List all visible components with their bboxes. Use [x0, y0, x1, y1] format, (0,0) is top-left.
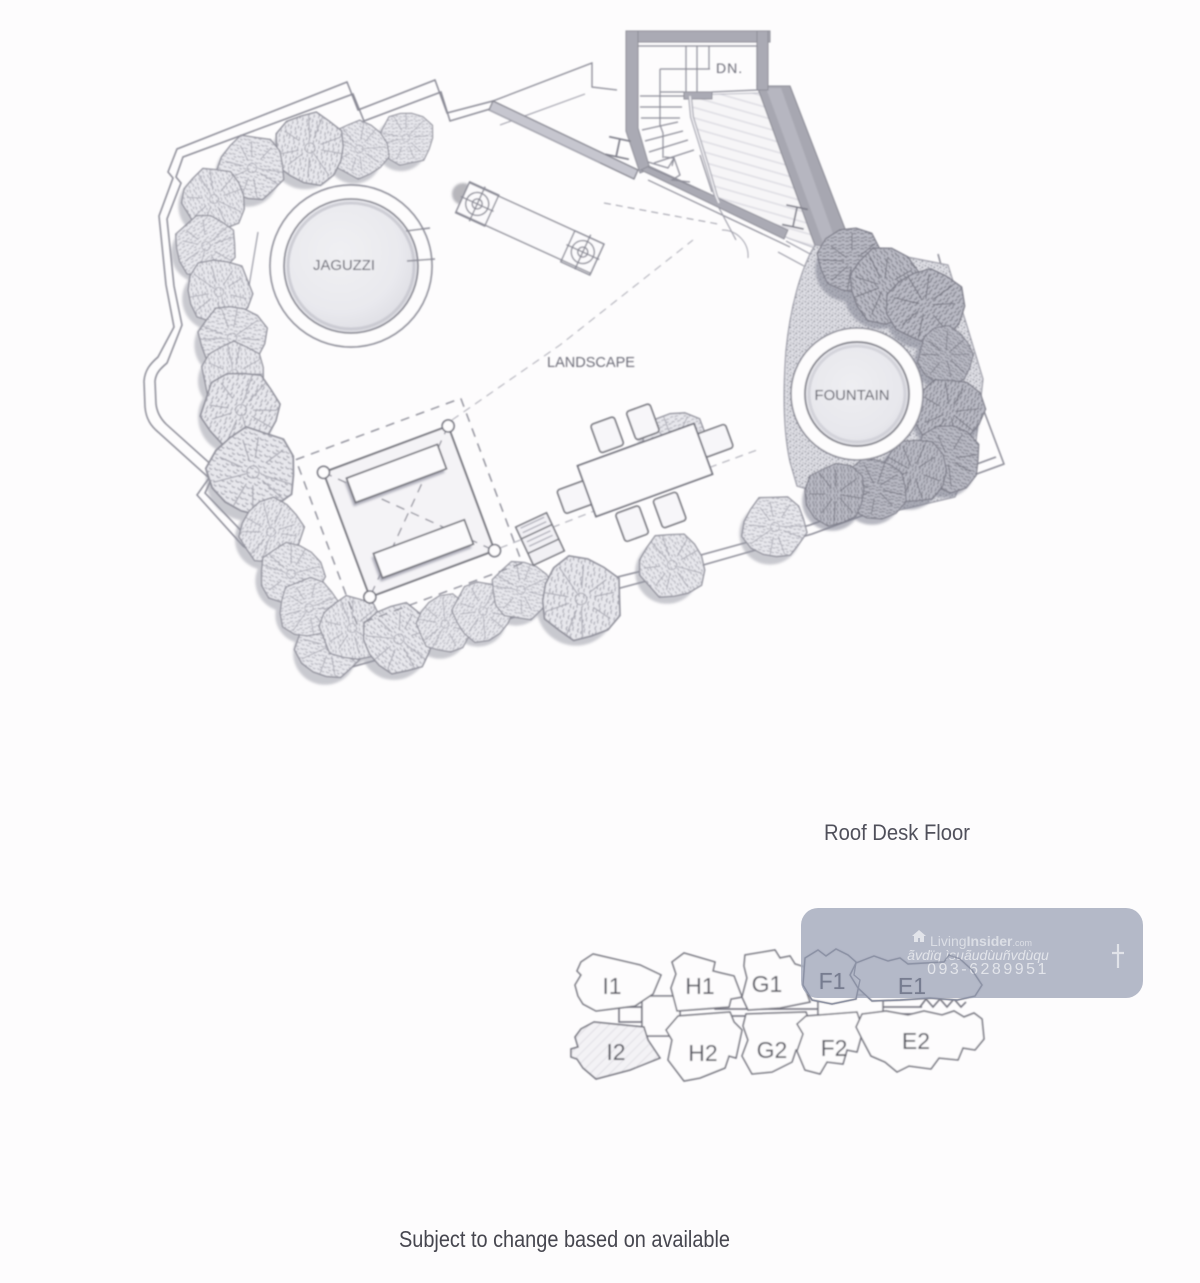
svg-text:093-6289951: 093-6289951 — [927, 961, 1049, 978]
svg-text:E2: E2 — [902, 1028, 930, 1054]
svg-text:FOUNTAIN: FOUNTAIN — [815, 387, 890, 404]
svg-text:Subject to change based on ava: Subject to change based on available — [399, 1226, 730, 1252]
svg-text:H1: H1 — [685, 973, 714, 999]
svg-text:G2: G2 — [757, 1037, 788, 1063]
svg-text:I2: I2 — [606, 1039, 625, 1065]
svg-text:JAGUZZI: JAGUZZI — [313, 257, 375, 274]
svg-text:E1: E1 — [898, 973, 926, 999]
svg-text:G1: G1 — [752, 971, 783, 997]
svg-text:I1: I1 — [602, 973, 621, 999]
svg-text:DN.: DN. — [716, 60, 743, 76]
svg-text:H2: H2 — [688, 1040, 717, 1066]
svg-text:F1: F1 — [819, 968, 846, 994]
svg-text:Roof Desk Floor: Roof Desk Floor — [824, 820, 970, 845]
svg-text:F2: F2 — [821, 1035, 848, 1061]
svg-text:LANDSCAPE: LANDSCAPE — [547, 354, 635, 371]
